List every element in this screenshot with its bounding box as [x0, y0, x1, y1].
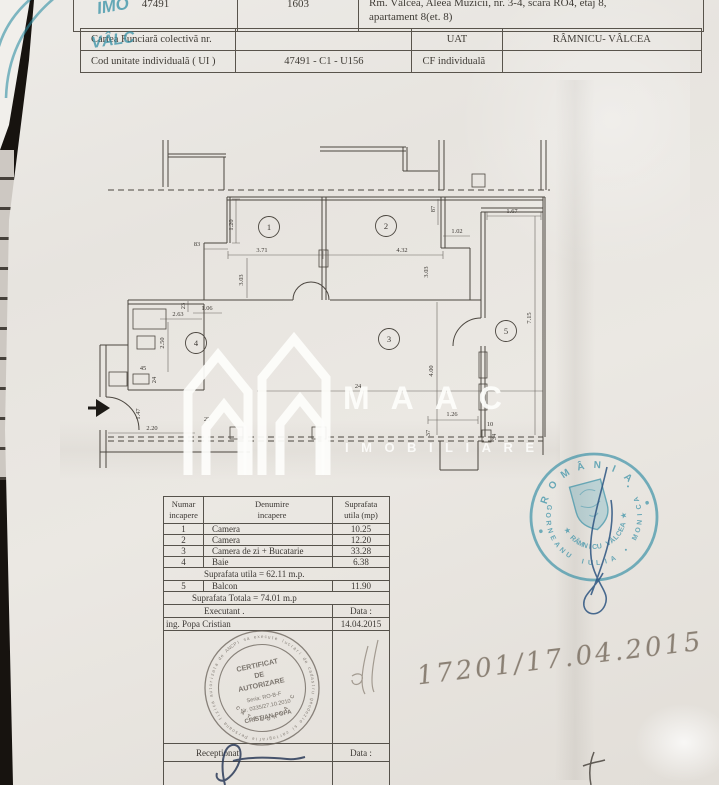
room-area: 33.28 [333, 546, 390, 557]
room-number: 1 [164, 524, 204, 535]
dimension-label: 10 [487, 421, 493, 428]
dimension-label: 24 [151, 376, 158, 383]
room-number: 2 [164, 535, 204, 546]
room-number: 3 [164, 546, 204, 557]
table-row: 3 Camera de zi + Bucatarie 33.28 [164, 546, 390, 557]
dimension-label: 37 [425, 429, 432, 436]
fixtures [109, 174, 491, 442]
table-row: 5 Balcon 11.90 [164, 581, 390, 592]
scanned-document-page: 47491 1603 Rm. Vâlcea, Aleea Muzicii, nr… [0, 0, 719, 785]
table-row: 2 Camera 12.20 [164, 535, 390, 546]
room-number: 4 [164, 557, 204, 568]
room-name: Balcon [204, 581, 333, 592]
room-area: 12.20 [333, 535, 390, 546]
room-number-label: 3 [387, 334, 391, 344]
executant-date: 14.04.2015 [333, 618, 390, 631]
header-room-number: Numar incapere [164, 497, 204, 524]
executant-row: Executant . Data : [164, 605, 390, 618]
dimension-label: 3.03 [238, 274, 245, 285]
dimension-label: 3.71 [256, 247, 267, 254]
stamp-area-cell [333, 631, 390, 744]
table-header-row: Numar incapere Denumire incapere Suprafa… [164, 497, 390, 524]
table-row: 1 Camera 10.25 [164, 524, 390, 535]
room-area: 6.38 [333, 557, 390, 568]
room-name: Camera [204, 535, 333, 546]
dimension-label: 1.20 [228, 219, 235, 230]
signature-row [164, 762, 390, 785]
total-row: Suprafata Totala = 74.01 m.p [164, 592, 390, 605]
dimension-label: 3.03 [423, 266, 430, 277]
dimension-label: 1.02 [451, 228, 462, 235]
stamp-area-row [164, 631, 390, 744]
stamp-area-cell [164, 631, 333, 744]
plan-dimension-labels: 831.203.714.323.033.03871.021.677.15232.… [135, 205, 533, 440]
room-name: Baie [204, 557, 333, 568]
room-area: 11.90 [333, 581, 390, 592]
dimension-label: 83 [194, 241, 200, 248]
subtotal-text: Suprafata utila = 62.11 m.p. [164, 568, 390, 581]
plan-walls [88, 140, 550, 470]
dimension-label: 45 [140, 365, 146, 372]
dimension-label: 1.67 [506, 208, 518, 215]
dimension-label: 23 [180, 303, 187, 309]
room-number: 5 [164, 581, 204, 592]
room-number-label: 1 [267, 222, 271, 232]
dimension-label: 2.20 [146, 425, 157, 432]
received-date-label: Data : [333, 744, 390, 762]
executant-label: Executant . [164, 605, 333, 618]
total-text: Suprafata Totala = 74.01 m.p [164, 592, 390, 605]
signature-cell [333, 762, 390, 785]
table-row: 4 Baie 6.38 [164, 557, 390, 568]
subtotal-row: Suprafata utila = 62.11 m.p. [164, 568, 390, 581]
executant-name-row: ing. Popa Cristian 14.04.2015 [164, 618, 390, 631]
room-number-label: 5 [504, 326, 508, 336]
room-name: Camera [204, 524, 333, 535]
room-name: Camera de zi + Bucatarie [204, 546, 333, 557]
dimension-label: 34 [491, 433, 498, 440]
dimension-label: 25 [204, 416, 210, 423]
header-room-area: Suprafata utila (mp) [333, 497, 390, 524]
dimension-label: 2.63 [172, 311, 183, 318]
dimension-label: 87 [430, 205, 437, 212]
dimension-label: 2.50 [159, 337, 166, 348]
header-room-name: Denumire incapere [204, 497, 333, 524]
room-number-label: 2 [384, 221, 388, 231]
executant-name: ing. Popa Cristian [164, 618, 333, 631]
executant-date-label: Data : [333, 605, 390, 618]
signature-cell [164, 762, 333, 785]
room-number-label: 4 [194, 338, 199, 348]
entrance-arrow [88, 399, 110, 417]
dimension-label: 4.00 [428, 365, 435, 376]
received-row: Receptionat Data : [164, 744, 390, 762]
dimension-label: 1.26 [446, 411, 457, 418]
dimension-label: 24 [355, 383, 362, 390]
dimension-label: 4.32 [396, 247, 407, 254]
room-areas-table: Numar incapere Denumire incapere Suprafa… [163, 496, 390, 785]
room-area: 10.25 [333, 524, 390, 535]
received-label: Receptionat [164, 744, 333, 762]
dimension-label: 7.15 [526, 312, 533, 323]
dimension-label: 1.47 [135, 408, 142, 420]
dimension-label: 1.06 [201, 305, 212, 312]
